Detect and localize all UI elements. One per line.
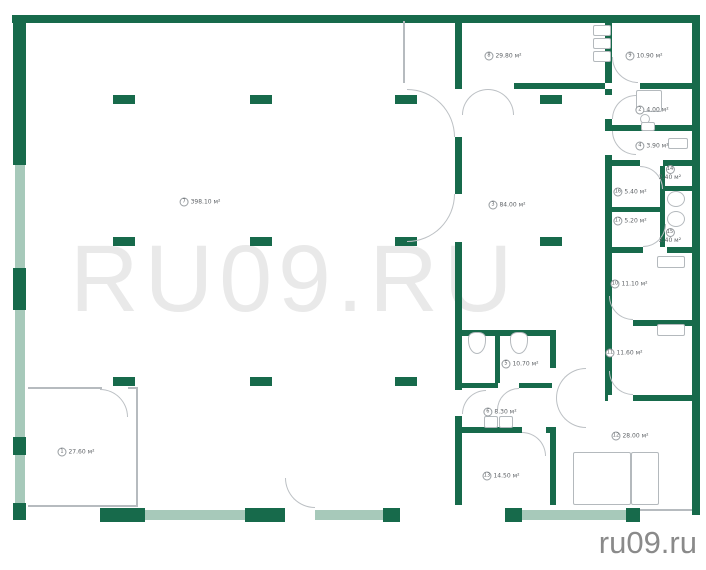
- room-area: 4.00 м²: [646, 107, 668, 113]
- wall-segment: [692, 15, 700, 515]
- room-number: 9: [625, 52, 634, 61]
- room-number: 3: [488, 201, 497, 210]
- room-area: 10.90 м²: [636, 53, 662, 59]
- room-label-5: 510.70 м²: [501, 360, 538, 369]
- room-label-6: 68.30 м²: [483, 408, 516, 417]
- door-arc: [462, 89, 488, 115]
- room-label-3: 384.00 м²: [488, 201, 525, 210]
- wall-segment: [100, 508, 145, 522]
- room-number: 6: [483, 408, 492, 417]
- window-strip: [315, 510, 383, 520]
- window-strip: [145, 510, 245, 520]
- room-number: 1: [57, 448, 66, 457]
- door-arc: [522, 432, 546, 456]
- room-label-9: 910.90 м²: [625, 52, 662, 61]
- wall-segment: [13, 503, 26, 520]
- room-number: 17: [613, 217, 622, 226]
- wall-segment: [667, 247, 692, 253]
- partition-line: [136, 387, 138, 507]
- structural-column: [250, 237, 272, 246]
- wall-segment: [455, 21, 462, 83]
- partition-line: [403, 21, 405, 83]
- fixture-rect: [573, 452, 631, 505]
- window-strip: [522, 510, 626, 520]
- room-label-10: 1011.10 м²: [610, 280, 647, 289]
- wall-segment: [455, 430, 462, 505]
- wall-segment: [514, 83, 605, 89]
- wall-segment: [605, 207, 662, 212]
- door-arc: [285, 478, 315, 508]
- fixture-toilet: [510, 332, 528, 354]
- room-area: 14.50 м²: [493, 473, 519, 479]
- door-arc: [488, 89, 514, 115]
- structural-column: [113, 95, 135, 104]
- room-area: 29.80 м²: [495, 53, 521, 59]
- room-label-17: 175.20 м²: [613, 217, 646, 226]
- wall-segment: [605, 160, 640, 166]
- structural-column: [540, 237, 562, 246]
- room-area: 2.40 м²: [659, 238, 681, 244]
- room-area: 11.60 м²: [616, 350, 642, 356]
- wall-segment: [455, 242, 462, 330]
- room-area: 398.10 м²: [191, 199, 221, 205]
- fixture-rect: [593, 38, 611, 49]
- room-label-15: 152.40 м²: [659, 228, 681, 244]
- partition-line: [28, 387, 102, 389]
- room-area: 2.40 м²: [659, 175, 681, 181]
- door-arc: [612, 131, 636, 155]
- door-arc: [100, 389, 128, 417]
- room-label-4: 43.90 м²: [635, 142, 668, 151]
- floor-plan: 127.60 м²24.00 м²384.00 м²43.90 м²510.70…: [0, 0, 706, 570]
- fixture-rect: [657, 324, 685, 336]
- room-number: 12: [611, 432, 620, 441]
- wall-segment: [495, 336, 500, 383]
- door-arc: [612, 57, 638, 83]
- structural-column: [250, 377, 272, 386]
- room-number: 15: [665, 228, 674, 237]
- wall-segment: [605, 89, 612, 95]
- structural-column: [395, 377, 417, 386]
- fixture-rect: [499, 416, 513, 428]
- door-arc: [407, 194, 455, 242]
- partition-line: [640, 509, 692, 511]
- wall-segment: [605, 247, 643, 253]
- room-number: 13: [482, 472, 491, 481]
- wall-segment: [550, 330, 556, 368]
- door-arc: [462, 390, 486, 414]
- room-number: 11: [605, 349, 614, 358]
- room-label-1: 127.60 м²: [57, 448, 94, 457]
- room-area: 11.10 м²: [621, 281, 647, 287]
- door-arc: [407, 89, 455, 137]
- wall-segment: [245, 508, 285, 522]
- wall-segment: [12, 15, 700, 23]
- wall-segment: [640, 83, 692, 89]
- wall-segment: [550, 428, 556, 505]
- room-label-16: 165.40 м²: [613, 188, 646, 197]
- fixture-rect: [631, 452, 659, 505]
- structural-column: [113, 237, 135, 246]
- room-number: 5: [501, 360, 510, 369]
- wall-segment: [455, 330, 462, 390]
- structural-column: [540, 95, 562, 104]
- room-label-11: 1111.60 м²: [605, 349, 642, 358]
- room-area: 8.30 м²: [494, 409, 516, 415]
- structural-column: [250, 95, 272, 104]
- structural-column: [113, 377, 135, 386]
- door-arc: [609, 296, 633, 320]
- room-area: 5.40 м²: [624, 189, 646, 195]
- room-number: 10: [610, 280, 619, 289]
- room-number: 14: [665, 165, 674, 174]
- wall-segment: [605, 395, 608, 401]
- wall-segment: [13, 15, 26, 165]
- wall-segment: [605, 320, 608, 326]
- wall-segment: [633, 395, 692, 401]
- room-number: 16: [613, 188, 622, 197]
- room-area: 5.20 м²: [624, 218, 646, 224]
- room-label-2: 24.00 м²: [635, 106, 668, 115]
- wall-segment: [458, 383, 498, 388]
- room-area: 28.00 м²: [622, 433, 648, 439]
- room-area: 84.00 м²: [499, 202, 525, 208]
- wall-segment: [455, 83, 462, 89]
- door-arc: [556, 398, 586, 428]
- door-arc: [609, 371, 633, 395]
- partition-line: [28, 505, 138, 507]
- wall-segment: [455, 137, 462, 194]
- site-credit-text: ru09.ru: [599, 527, 697, 558]
- wall-segment: [13, 268, 26, 310]
- fixture-rect: [641, 122, 655, 131]
- wall-segment: [626, 508, 640, 522]
- door-arc: [556, 368, 586, 398]
- room-area: 10.70 м²: [512, 361, 538, 367]
- wall-segment: [383, 508, 400, 522]
- window-strip: [15, 455, 25, 503]
- room-number: 7: [180, 198, 189, 207]
- room-label-7: 7398.10 м²: [180, 198, 221, 207]
- fixture-rect: [593, 25, 611, 36]
- room-label-13: 1314.50 м²: [482, 472, 519, 481]
- room-number: 2: [635, 106, 644, 115]
- fixture-rect: [668, 138, 688, 149]
- fixture-rect: [593, 51, 611, 62]
- fixture-toilet: [468, 332, 486, 354]
- room-label-14: 142.40 м²: [659, 165, 681, 181]
- room-area: 3.90 м²: [646, 143, 668, 149]
- door-arc: [612, 95, 636, 119]
- room-number: 4: [635, 142, 644, 151]
- wall-segment: [605, 155, 612, 395]
- room-label-12: 1228.00 м²: [611, 432, 648, 441]
- wall-segment: [505, 508, 522, 522]
- wall-segment: [519, 383, 552, 388]
- wall-segment: [13, 437, 26, 455]
- room-number: 8: [484, 52, 493, 61]
- room-label-8: 829.80 м²: [484, 52, 521, 61]
- fixture-rect: [484, 416, 498, 428]
- window-strip: [15, 165, 25, 268]
- fixture-rect: [657, 256, 685, 268]
- fixture-round: [667, 191, 685, 207]
- room-area: 27.60 м²: [68, 449, 94, 455]
- window-strip: [15, 310, 25, 437]
- fixture-round: [667, 211, 685, 227]
